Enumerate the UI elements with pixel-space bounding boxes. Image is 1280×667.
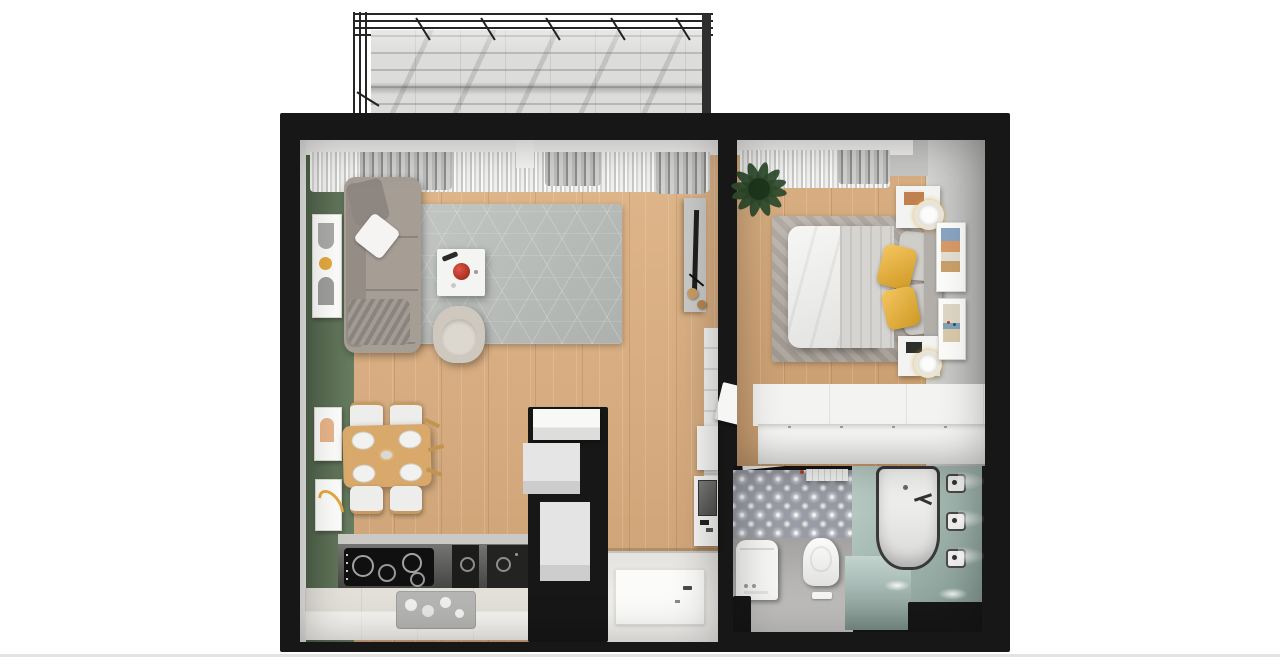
bathtub [876, 466, 940, 570]
window-pillar [516, 140, 534, 168]
bedroom-picture [936, 222, 966, 292]
dining-chair [390, 486, 422, 514]
hall-console [694, 476, 718, 546]
wall-art-small [314, 407, 342, 461]
art-shape [318, 277, 334, 305]
bedroom-picture [938, 298, 966, 360]
living-curtain-drape [545, 152, 601, 186]
plate [398, 430, 421, 449]
dish [405, 599, 417, 611]
cooktop-knobs [346, 554, 348, 580]
washer-dot [752, 584, 756, 588]
burner [352, 555, 374, 577]
wall-art-small [315, 479, 342, 531]
door-detail [675, 600, 680, 603]
console-decor [706, 528, 713, 532]
sconce-light-beam [958, 510, 984, 528]
picture-print [941, 228, 960, 272]
tub-drain [903, 485, 908, 490]
wardrobe-knobs [788, 426, 948, 428]
door-handle [683, 586, 692, 590]
wood-stool [687, 288, 698, 299]
floor-plan-canvas [0, 0, 1280, 667]
washer-slot [744, 591, 768, 594]
appliance-dot [515, 553, 518, 556]
table-candle [381, 451, 392, 459]
toilet-lid [810, 546, 832, 572]
sofa [344, 177, 421, 353]
bathroom-wall-notch [733, 596, 751, 650]
appliance-dial [496, 557, 511, 572]
bathroom-wall-step [908, 602, 1008, 650]
table-dot [474, 270, 478, 274]
art-shape [320, 418, 334, 442]
wall-art-large [312, 214, 342, 318]
bathroom-detail [800, 470, 804, 474]
plate [399, 463, 422, 482]
sconce-bulb [952, 555, 957, 560]
washing-machine [736, 540, 778, 600]
washer-seam [740, 548, 774, 550]
wardrobe-top [753, 384, 985, 426]
sconce-bulb [952, 518, 957, 523]
built-in-appliance [487, 545, 532, 589]
bedroom-curtain-drape [838, 150, 890, 184]
toilet [803, 538, 839, 586]
built-in-oven [452, 545, 479, 589]
burner [410, 572, 425, 587]
coffee-table [437, 249, 485, 296]
picture-detail [953, 323, 956, 326]
nightstand [898, 336, 940, 376]
mirror [698, 480, 717, 516]
living-curtain-drape [656, 152, 706, 194]
washer-dot [744, 584, 748, 588]
nightstand [896, 186, 940, 228]
art-shape [318, 223, 334, 249]
picture-print [943, 304, 960, 342]
dish [422, 605, 434, 617]
pergola-right-post [702, 14, 711, 120]
wardrobe-front [758, 424, 985, 464]
sconce-bulb [952, 480, 957, 485]
floor-baseline [0, 654, 1280, 657]
wood-stool [697, 300, 706, 309]
wall-top-edge [300, 140, 306, 642]
console-decor [700, 520, 709, 525]
plant-core [748, 178, 770, 200]
art-dot [319, 257, 332, 270]
red-bowl [453, 263, 470, 280]
shelf-box [697, 426, 718, 470]
oven-dial [460, 557, 475, 572]
light-glint [884, 580, 910, 591]
dish [455, 609, 464, 618]
remote-control [442, 251, 459, 262]
sink-dish-rack [396, 591, 476, 629]
sconce-light-beam [958, 472, 984, 490]
entry-threshold [595, 548, 718, 553]
light-glint [938, 588, 968, 600]
table-dot [451, 283, 456, 288]
pergola-left-rail [353, 12, 371, 120]
burner [378, 564, 396, 582]
plate [351, 431, 374, 450]
dish [440, 597, 451, 608]
flush-plate [812, 592, 832, 599]
dining-chair [350, 486, 383, 514]
balcony [353, 12, 713, 120]
tall-cabinet [533, 409, 600, 440]
plaid-blanket [348, 299, 410, 345]
bed-blanket [840, 226, 894, 348]
doormat [615, 569, 705, 625]
burner [402, 553, 422, 573]
picture-detail [947, 321, 950, 324]
storage-closet [523, 443, 580, 494]
radiator [806, 469, 848, 481]
balcony-floor [371, 30, 702, 120]
dining-table [342, 424, 432, 488]
armchair-seat [441, 319, 477, 355]
plate [352, 464, 375, 483]
cooktop [344, 548, 434, 586]
sconce-light-beam [958, 547, 984, 565]
armchair [433, 306, 485, 363]
storage-closet [540, 502, 590, 581]
